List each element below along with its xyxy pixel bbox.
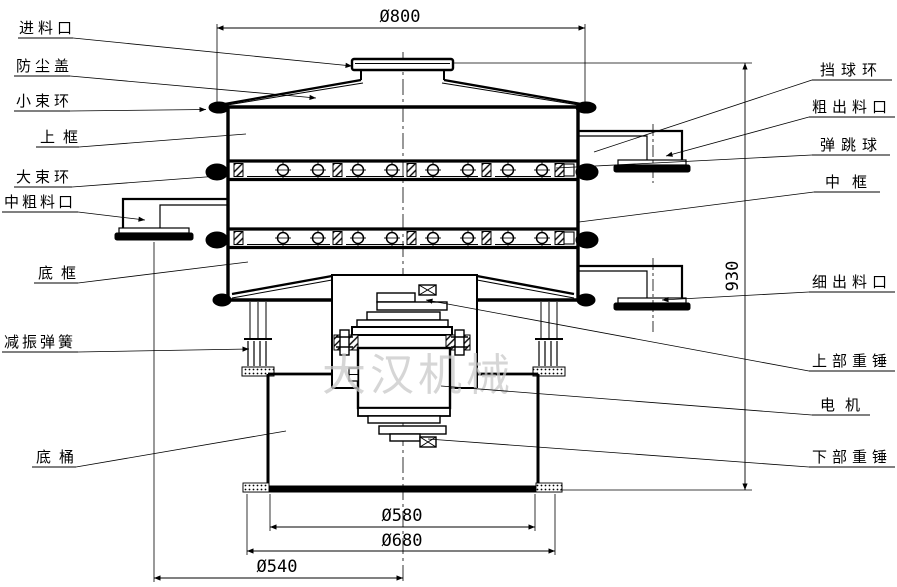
svg-text:Ø800: Ø800 <box>380 7 421 27</box>
svg-text:进料口: 进料口 <box>19 19 76 37</box>
svg-text:Ø580: Ø580 <box>382 506 423 526</box>
svg-text:防尘盖: 防尘盖 <box>16 57 73 75</box>
label-lower-weight: 下部重锤 <box>428 439 895 467</box>
svg-text:挡球环: 挡球环 <box>820 61 883 79</box>
dimension-top-diameter: Ø800 <box>217 7 585 104</box>
technical-drawing-page: 大汉机械 Ø800 <box>0 0 897 587</box>
label-fine-outlet: 细出料口 <box>662 273 895 300</box>
label-small-clamp-ring: 小束环 <box>14 92 206 111</box>
svg-text:下部重锤: 下部重锤 <box>812 448 892 466</box>
label-base-barrel: 底桶 <box>32 431 286 467</box>
svg-text:Ø540: Ø540 <box>257 557 298 577</box>
svg-text:Ø680: Ø680 <box>382 531 423 551</box>
label-middle-frame: 中框 <box>579 173 880 222</box>
svg-text:底框: 底框 <box>38 264 84 282</box>
svg-text:电机: 电机 <box>820 396 870 414</box>
svg-text:底桶: 底桶 <box>36 448 82 466</box>
dimension-total-height: 930 <box>452 63 752 490</box>
svg-text:弹跳球: 弹跳球 <box>820 136 883 154</box>
dimension-base-inner: Ø580 <box>270 494 535 531</box>
svg-text:上部重锤: 上部重锤 <box>812 352 892 370</box>
label-bottom-frame: 底框 <box>34 262 248 283</box>
vibrating-sieve-drawing: 大汉机械 Ø800 <box>0 0 897 587</box>
labels-left: 进料口 防尘盖 小束环 上框 大束环 中粗料口 <box>2 19 352 467</box>
svg-text:小束环: 小束环 <box>16 92 73 110</box>
svg-text:930: 930 <box>723 261 743 292</box>
sieve-body <box>206 59 598 306</box>
svg-text:中框: 中框 <box>825 173 879 191</box>
svg-text:粗出料口: 粗出料口 <box>812 98 892 116</box>
screen-deck-lower <box>227 229 579 248</box>
label-large-clamp-ring: 大束环 <box>14 168 219 187</box>
svg-text:细出料口: 细出料口 <box>812 273 892 291</box>
svg-text:减振弹簧: 减振弹簧 <box>4 333 76 351</box>
svg-text:中粗料口: 中粗料口 <box>4 193 76 211</box>
watermark-text: 大汉机械 <box>322 350 514 401</box>
label-upper-frame: 上框 <box>36 128 246 147</box>
lower-weight-stack <box>358 408 450 447</box>
svg-text:大束环: 大束环 <box>16 168 73 186</box>
feed-inlet <box>352 59 453 80</box>
svg-text:上框: 上框 <box>40 128 86 146</box>
label-damping-spring: 减振弹簧 <box>2 333 249 352</box>
fine-outlet-duct <box>578 258 690 332</box>
labels-right: 挡球环 粗出料口 弹跳球 中框 细出料口 上部重锤 <box>426 61 895 467</box>
